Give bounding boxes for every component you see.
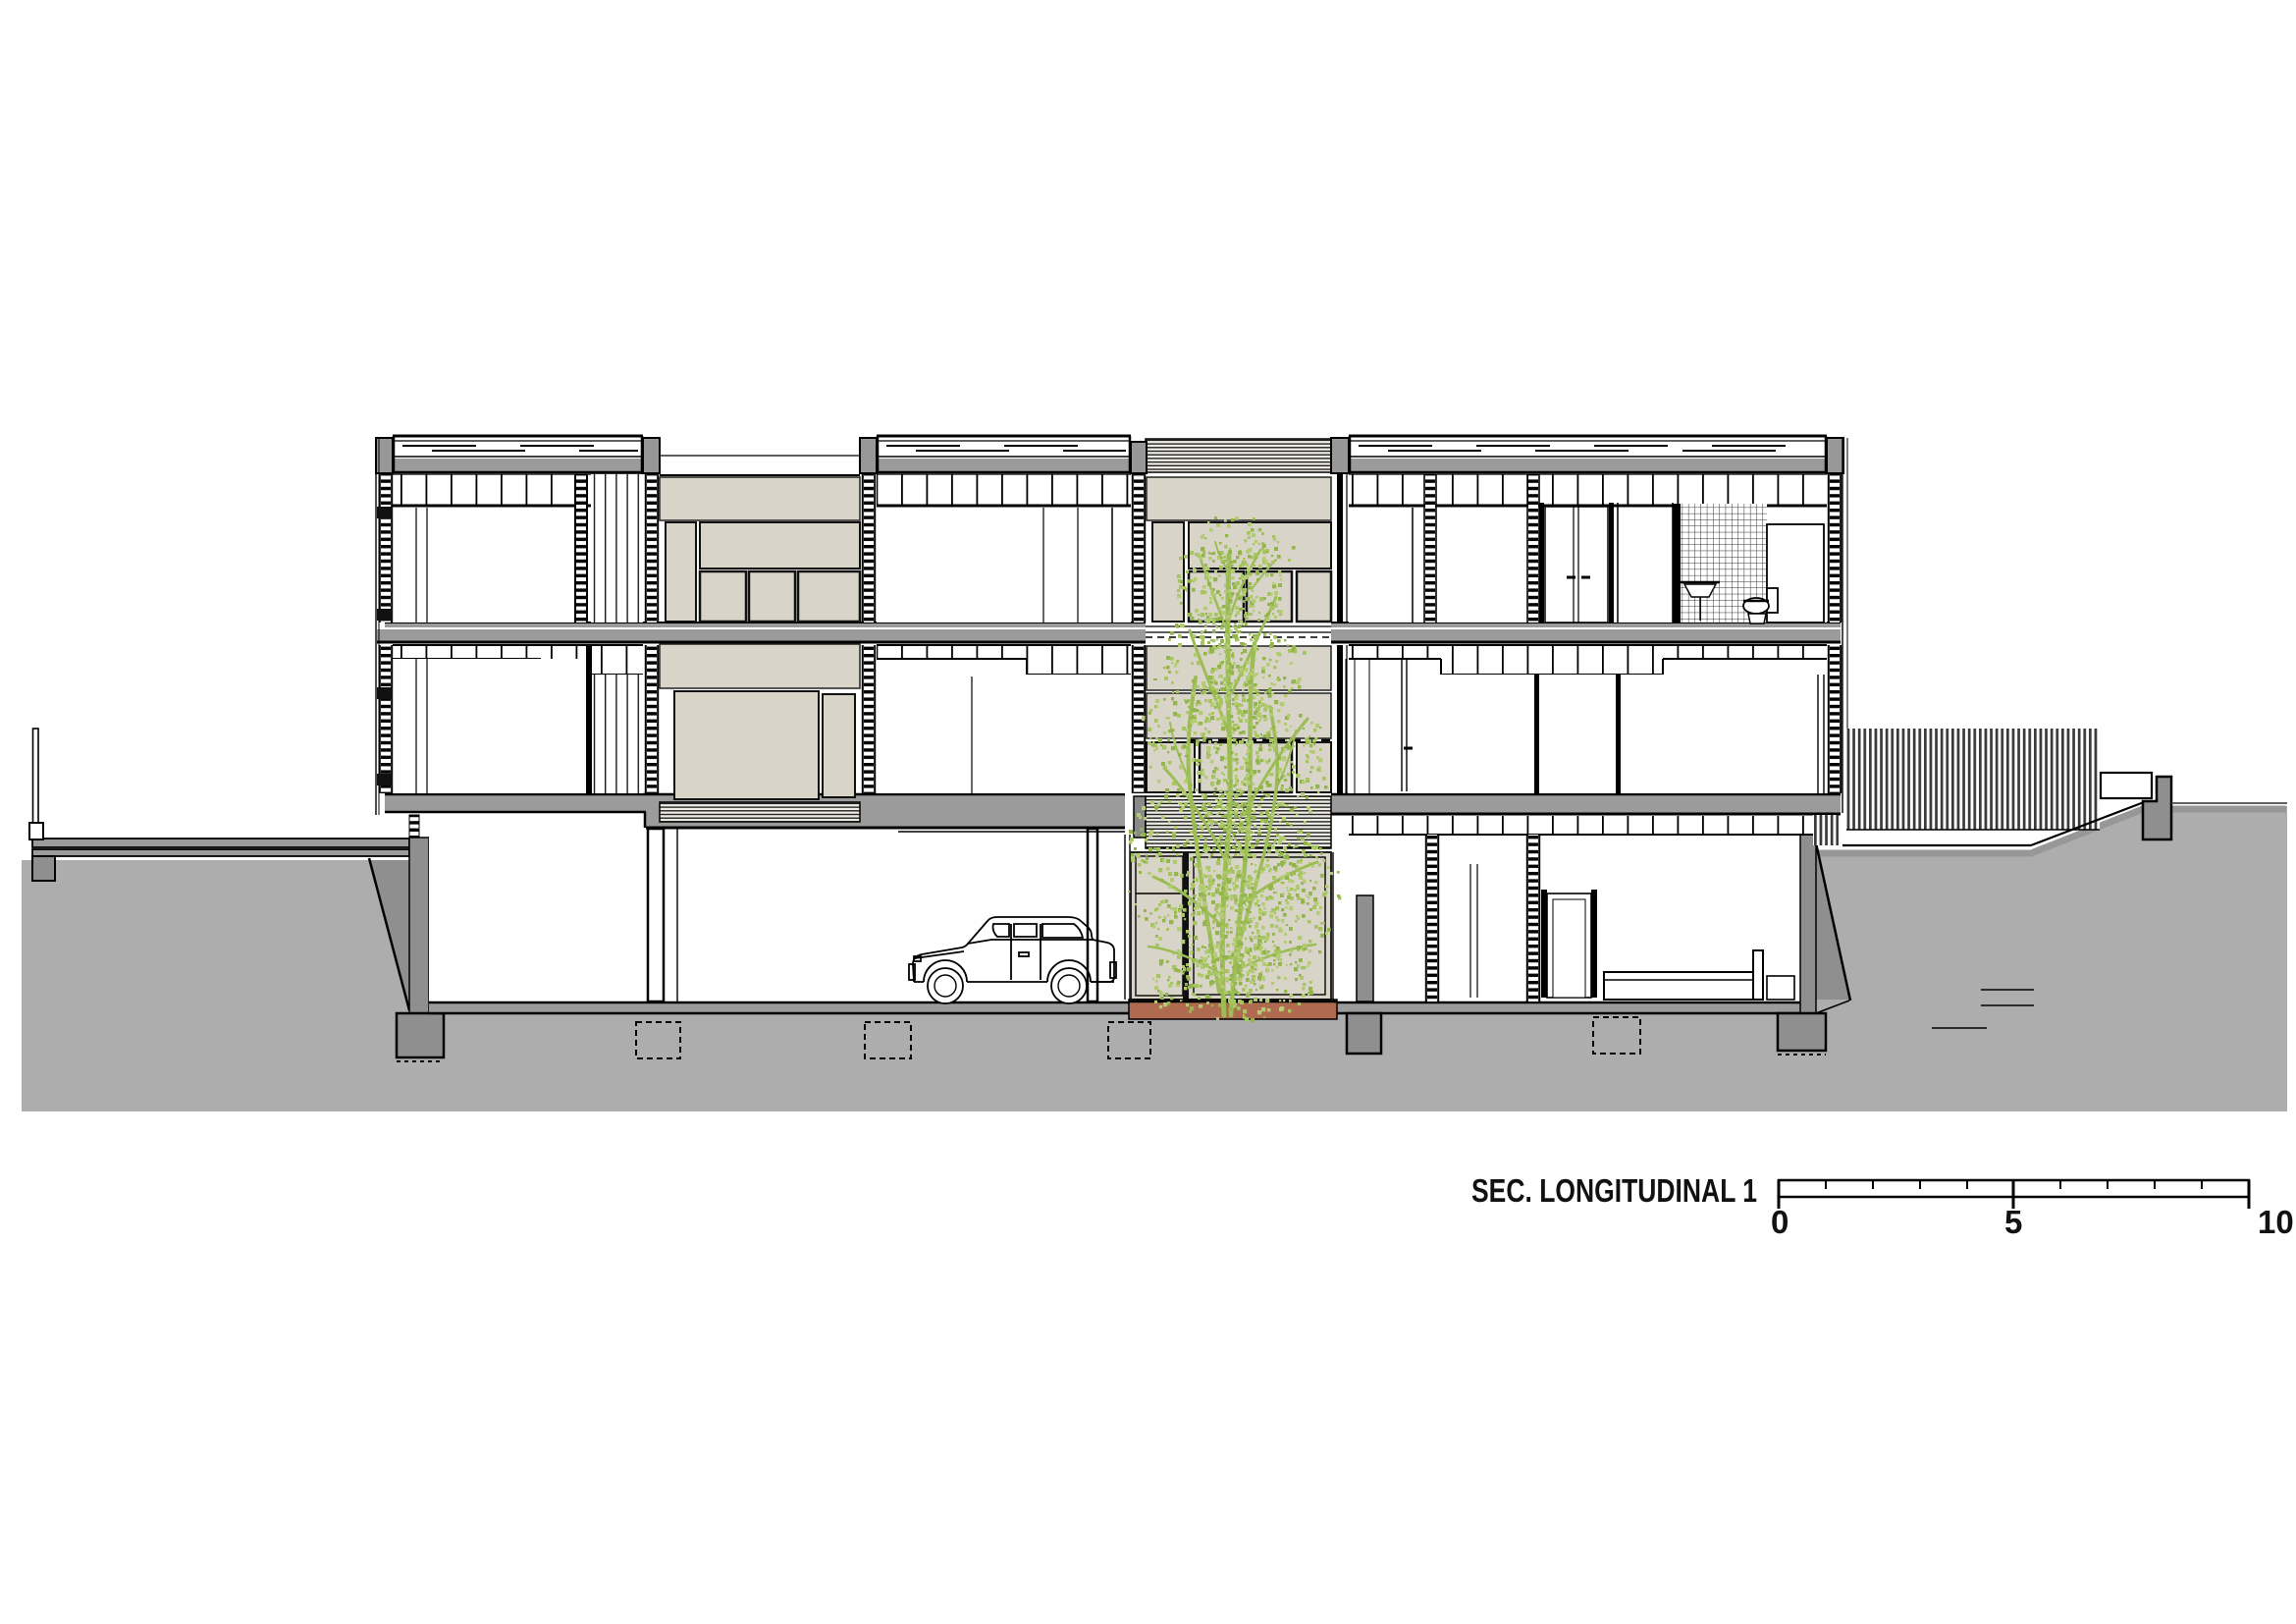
svg-text:5: 5	[2004, 1204, 2022, 1240]
svg-text:0: 0	[1771, 1204, 1789, 1240]
svg-text:SEC. LONGITUDINAL 1: SEC. LONGITUDINAL 1	[1471, 1172, 1757, 1209]
svg-text:10: 10	[2258, 1204, 2294, 1240]
